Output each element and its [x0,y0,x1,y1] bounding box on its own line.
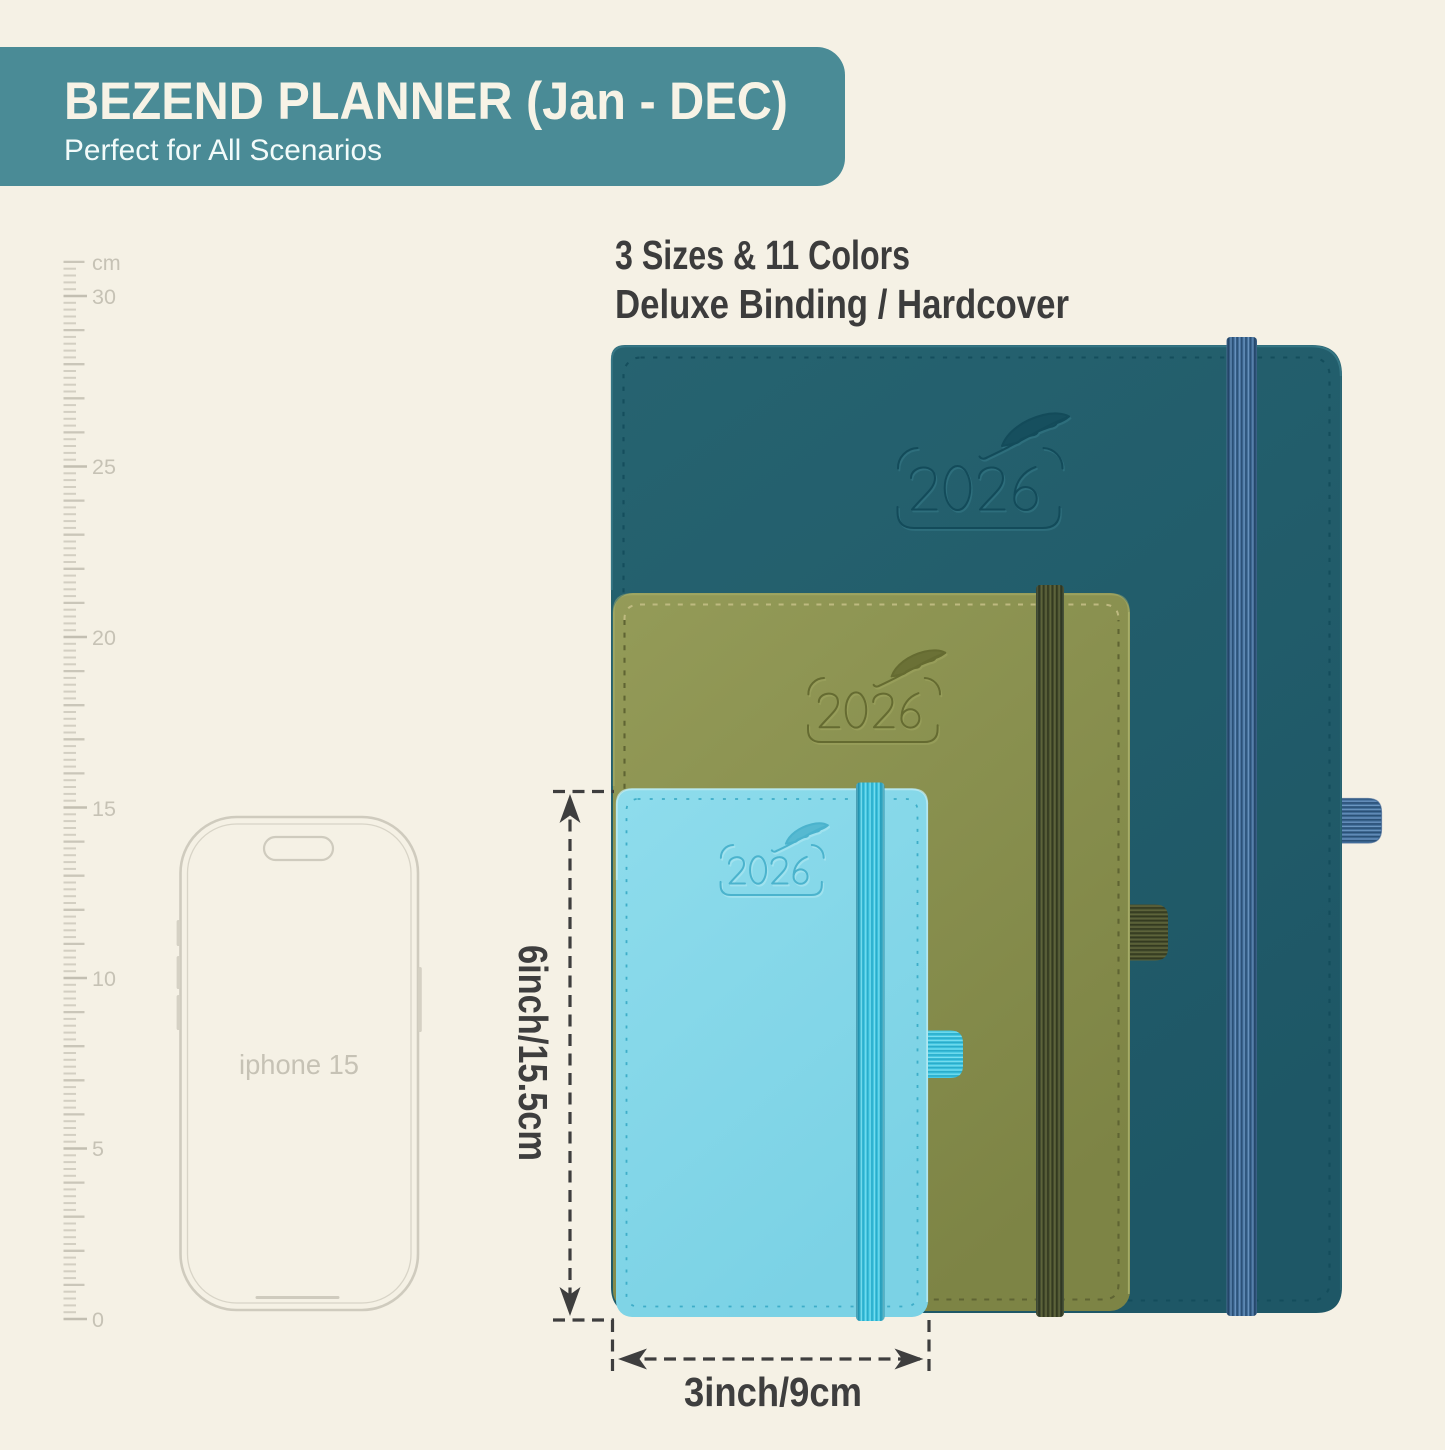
svg-text:25: 25 [92,455,116,479]
svg-text:15: 15 [92,797,116,821]
svg-text:30: 30 [92,285,116,309]
svg-text:20: 20 [92,626,116,650]
svg-text:6inch/15.5cm: 6inch/15.5cm [510,945,556,1161]
svg-text:Deluxe Binding / Hardcover: Deluxe Binding / Hardcover [615,281,1069,327]
svg-text:Perfect for All Scenarios: Perfect for All Scenarios [64,134,382,167]
svg-text:3inch/9cm: 3inch/9cm [684,1369,862,1415]
svg-text:0: 0 [92,1308,104,1332]
svg-text:iphone 15: iphone 15 [239,1049,359,1080]
svg-text:cm: cm [92,251,121,275]
svg-text:5: 5 [92,1137,104,1161]
svg-text:BEZEND PLANNER (Jan - DEC): BEZEND PLANNER (Jan - DEC) [64,72,788,131]
svg-text:3 Sizes & 11 Colors: 3 Sizes & 11 Colors [615,232,910,278]
svg-text:10: 10 [92,967,116,991]
